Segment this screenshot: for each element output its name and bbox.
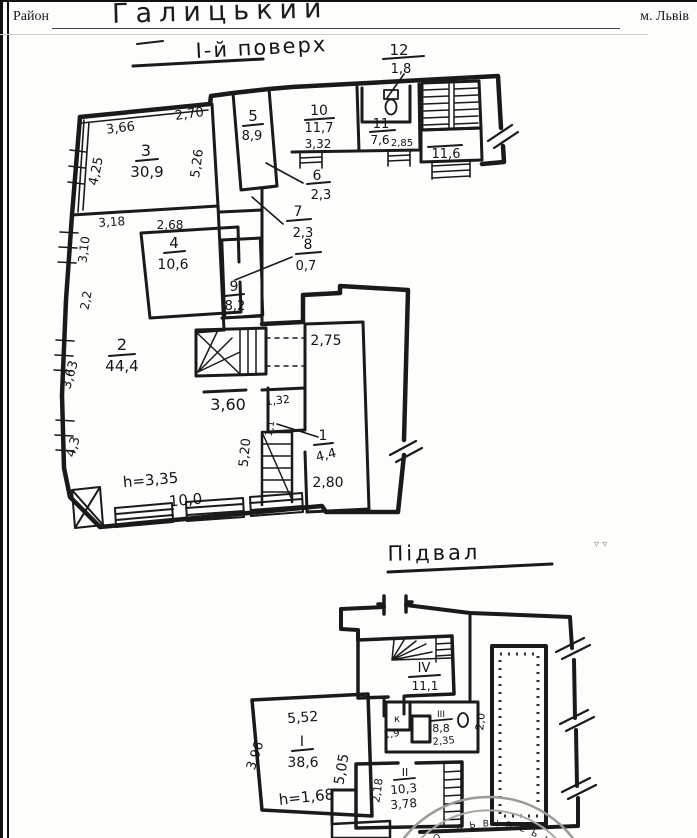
dim-2-70: 2,70 xyxy=(174,105,205,124)
basement-title: Підвал xyxy=(387,540,480,566)
room2-area: 44,4 xyxy=(105,357,138,375)
dim-2-0: 2,0 xyxy=(473,712,488,731)
room3-area: 30,9 xyxy=(130,163,163,181)
room9-area: 8,2 xyxy=(225,299,246,314)
room2-number: 2 xyxy=(117,335,127,354)
roomIII-area: 8,8 xyxy=(432,722,450,735)
dim-3-96: 3,96 xyxy=(244,740,267,772)
room8-number: 8 xyxy=(304,237,313,253)
roomIV-number: IV xyxy=(418,661,431,676)
dim-5-20: 5,20 xyxy=(237,437,255,467)
dim-2-18: 2,18 xyxy=(369,777,385,803)
floor1-walls xyxy=(54,74,518,528)
dim-1-1: 1,1 xyxy=(264,420,278,438)
scan-mark: ▿ ▿ xyxy=(594,539,607,550)
dim-2-68: 2,68 xyxy=(157,218,184,232)
roomK-area: 1,9 xyxy=(383,728,400,741)
room10-width-dim: 3,32 xyxy=(305,137,332,151)
dim-3-66: 3,66 xyxy=(105,119,136,137)
dim-3-78: 3,78 xyxy=(390,796,418,812)
room3-number: 3 xyxy=(141,141,151,160)
floor1-height-note: h=3,35 xyxy=(122,469,179,492)
room10-area: 11,7 xyxy=(305,121,334,136)
dim-5-26: 5,26 xyxy=(188,148,207,179)
roomII-number: II xyxy=(402,766,409,779)
room11-area: 7,6 xyxy=(370,133,389,147)
roomIII-number: III xyxy=(437,710,445,720)
roomI-area: 38,6 xyxy=(287,755,318,771)
floor-plan-drawing: І-й поверх xyxy=(0,0,697,838)
basement-labels: IV 11,1 5,52 I 38,6 3,96 5,05 h=1,68 к 1… xyxy=(244,661,488,812)
dim-5-05: 5,05 xyxy=(331,753,352,786)
room8-area: 0,7 xyxy=(296,259,317,274)
room1-area: 4,4 xyxy=(314,446,338,466)
dim-2-2: 2,2 xyxy=(78,290,95,311)
room4-area: 10,6 xyxy=(157,257,188,273)
dim-4-25: 4,25 xyxy=(86,156,107,187)
roomK-number: к xyxy=(394,714,400,725)
dim-2-80: 2,80 xyxy=(312,475,343,491)
room11-width-dim: 2,85 xyxy=(391,138,413,149)
roomIV-area: 11,1 xyxy=(412,679,439,693)
stair-hall-area: 11,6 xyxy=(432,147,461,162)
room12-area: 1,8 xyxy=(391,62,412,77)
dim-3-18: 3,18 xyxy=(98,214,126,230)
room7-number: 7 xyxy=(294,204,303,220)
room12-number: 12 xyxy=(389,41,408,59)
basement-title-group: Підвал ▿ ▿ xyxy=(387,539,607,572)
basement-height-note: h=1,68 xyxy=(278,785,335,809)
dim-2-35: 2,35 xyxy=(432,735,455,748)
room5-area: 8,9 xyxy=(242,129,263,144)
room10-number: 10 xyxy=(310,103,328,119)
roomII-area: 10,3 xyxy=(390,781,418,797)
room9-number: 9 xyxy=(230,279,239,295)
scanned-floor-plan-page: Район Галицький м. Львів І-й поверх xyxy=(0,0,697,838)
dim-2-75: 2,75 xyxy=(310,333,341,349)
roomI-number: I xyxy=(300,734,304,750)
room6-number: 6 xyxy=(313,168,322,184)
room6-area: 2,3 xyxy=(311,188,332,203)
room1-number: 1 xyxy=(319,428,328,444)
dim-3-10: 3,10 xyxy=(75,235,92,263)
dim-4-3: 4,3 xyxy=(64,435,84,459)
room5-number: 5 xyxy=(248,107,258,125)
room4-number: 4 xyxy=(169,234,179,252)
floor1-title-group: І-й поверх xyxy=(133,32,328,66)
dim-1-32: 1,32 xyxy=(265,393,291,408)
dim-10-0: 10,0 xyxy=(168,490,203,511)
dim-5-52: 5,52 xyxy=(287,709,319,727)
dim-3-60: 3,60 xyxy=(210,395,246,414)
